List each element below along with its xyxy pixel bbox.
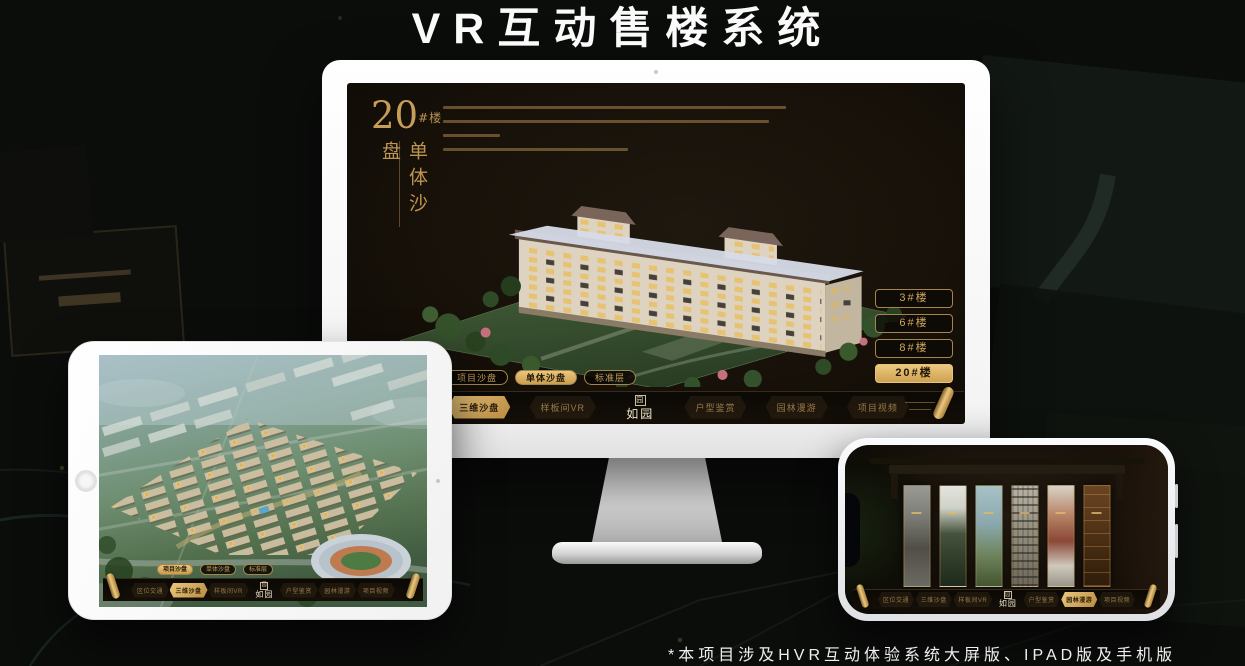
building-number-suffix: #楼 <box>418 111 442 125</box>
phone-brand-logo: 园 如园 <box>999 591 1017 608</box>
phone-nav-project-video[interactable]: 项目视频 <box>1104 595 1130 604</box>
building-button-20[interactable]: 20#楼 <box>875 364 953 383</box>
phone-screen: 区位交通 三维沙盘 样板间VR 园 如园 户型鉴赏 园林漫游 项目视频 <box>845 445 1168 614</box>
gallery-panel-4[interactable] <box>1011 485 1038 587</box>
building-button-6[interactable]: 6#楼 <box>875 314 953 333</box>
tablet-device: 项目沙盘 单体沙盘 标准层 区位交通 三维沙盘 样板间VR 园 如园 户型鉴赏 … <box>68 341 452 620</box>
pavilion-beam <box>889 465 1125 474</box>
tablet-screen: 项目沙盘 单体沙盘 标准层 区位交通 三维沙盘 样板间VR 园 如园 户型鉴赏 … <box>99 355 427 607</box>
gallery-panel-5[interactable] <box>1047 485 1074 587</box>
building-selector: 3#楼 6#楼 8#楼 20#楼 <box>875 289 953 383</box>
building-button-8[interactable]: 8#楼 <box>875 339 953 358</box>
gallery-panel-1[interactable] <box>903 485 930 587</box>
tablet-scroll-handle-left-icon[interactable] <box>107 575 127 601</box>
tablet-home-button[interactable] <box>75 470 97 492</box>
tablet-scroll-handle-right-icon[interactable] <box>399 575 419 601</box>
phone-scroll-handle-left-icon[interactable] <box>857 586 875 610</box>
phone-nav-showroom-vr[interactable]: 样板间VR <box>958 595 987 604</box>
phone-nav-location-traffic[interactable]: 区位交通 <box>883 595 909 604</box>
tablet-nav-project-video[interactable]: 项目视频 <box>363 586 389 595</box>
subtab-standard-floor[interactable]: 标准层 <box>584 370 636 385</box>
tablet-nav-showroom-vr[interactable]: 样板间VR <box>214 586 243 595</box>
subtab-project-sandbox[interactable]: 项目沙盘 <box>446 370 508 385</box>
phone-notch <box>845 493 860 567</box>
tablet-nav-bar: 区位交通 三维沙盘 样板间VR 园 如园 户型鉴赏 园林漫游 项目视频 <box>103 578 423 601</box>
brand-logo-text: 如园 <box>626 408 654 420</box>
tablet-brand-logo: 园 如园 <box>255 582 273 599</box>
tablet-subtab-project-sandbox[interactable]: 项目沙盘 <box>157 564 193 575</box>
monitor-stand-base <box>552 542 762 564</box>
nav-item-3d-sandbox[interactable]: 三维沙盘 <box>459 401 499 414</box>
building-model-illustration <box>387 135 927 387</box>
building-number: 20#楼 <box>371 97 442 134</box>
tablet-camera-dot <box>436 479 440 483</box>
tablet-subtab-standard-floor[interactable]: 标准层 <box>243 564 273 575</box>
building-button-3[interactable]: 3#楼 <box>875 289 953 308</box>
tablet-nav-3d-sandbox[interactable]: 三维沙盘 <box>176 586 202 595</box>
monitor-camera-dot <box>654 70 658 74</box>
brand-seal-icon: 园 <box>635 395 646 406</box>
phone-device: 区位交通 三维沙盘 样板间VR 园 如园 户型鉴赏 园林漫游 项目视频 <box>838 438 1175 621</box>
gallery-panel-6[interactable] <box>1083 485 1110 587</box>
tablet-brand-logo-text: 如园 <box>255 591 273 599</box>
tablet-nav-floorplans[interactable]: 户型鉴赏 <box>286 586 312 595</box>
tablet-nav-garden-roam[interactable]: 园林漫游 <box>324 586 350 595</box>
phone-volume-button[interactable] <box>1175 484 1178 508</box>
tablet-brand-seal-icon: 园 <box>260 582 268 590</box>
pavilion-post-left <box>891 473 898 499</box>
scroll-handle-icon[interactable] <box>905 389 957 423</box>
promo-canvas: VR互动售楼系统 20#楼 单体沙盘 <box>0 0 1245 666</box>
nav-item-garden-roam[interactable]: 园林漫游 <box>777 401 817 414</box>
page-title: VR互动售楼系统 <box>0 0 1245 56</box>
gallery-panel-2[interactable] <box>939 485 966 587</box>
phone-nav-3d-sandbox[interactable]: 三维沙盘 <box>921 595 947 604</box>
phone-brand-logo-text: 如园 <box>999 600 1017 608</box>
building-number-value: 20 <box>371 94 418 137</box>
phone-nav-bar: 区位交通 三维沙盘 样板间VR 园 如园 户型鉴赏 园林漫游 项目视频 <box>853 589 1160 609</box>
nav-item-project-video[interactable]: 项目视频 <box>858 401 898 414</box>
pavilion-post-right <box>1116 473 1123 499</box>
brand-logo: 园 如园 <box>626 395 654 420</box>
gallery-scroll-panels <box>903 485 1110 587</box>
phone-nav-garden-roam[interactable]: 园林漫游 <box>1066 595 1092 604</box>
monitor-stand-neck <box>591 455 723 547</box>
phone-power-button[interactable] <box>1175 524 1178 558</box>
subtab-single-sandbox[interactable]: 单体沙盘 <box>515 370 577 385</box>
sandbox-subtabs: 项目沙盘 单体沙盘 标准层 <box>446 370 636 385</box>
phone-brand-seal-icon: 园 <box>1004 591 1012 599</box>
tablet-sandbox-subtabs: 项目沙盘 单体沙盘 标准层 <box>157 564 273 575</box>
phone-scroll-handle-right-icon[interactable] <box>1138 586 1156 610</box>
gallery-panel-3[interactable] <box>975 485 1002 587</box>
tablet-nav-location-traffic[interactable]: 区位交通 <box>137 586 163 595</box>
tablet-subtab-single-sandbox[interactable]: 单体沙盘 <box>200 564 236 575</box>
footnote-text: *本项目涉及HVR互动体验系统大屏版、IPAD版及手机版 <box>668 641 1176 665</box>
nav-item-floorplans[interactable]: 户型鉴赏 <box>695 401 735 414</box>
phone-nav-floorplans[interactable]: 户型鉴赏 <box>1029 595 1055 604</box>
nav-item-showroom-vr[interactable]: 样板间VR <box>540 401 585 414</box>
